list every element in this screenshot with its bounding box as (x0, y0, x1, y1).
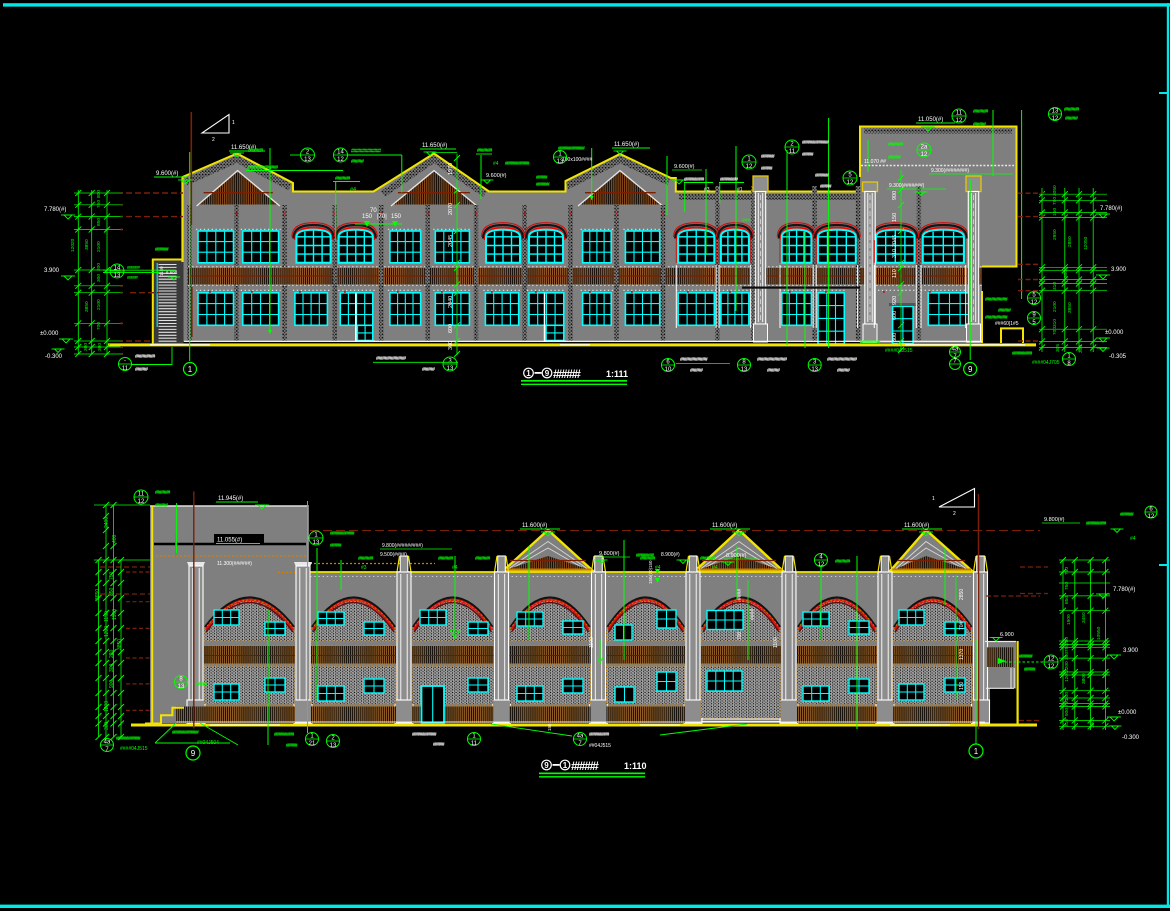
svg-text:##04J515: ##04J515 (589, 743, 611, 749)
svg-text:9.300(#######): 9.300(#######) (889, 183, 925, 189)
svg-text:12: 12 (1048, 657, 1055, 663)
svg-text:2100: 2100 (96, 299, 102, 310)
svg-text:####04J515: ####04J515 (120, 746, 148, 752)
svg-text:|70|: |70| (377, 214, 387, 220)
svg-text:200: 200 (1064, 692, 1070, 700)
svg-text:#####: ##### (196, 682, 208, 688)
svg-text:12: 12 (1148, 514, 1155, 520)
svg-text:#####: ##### (155, 503, 168, 509)
svg-text:1: 1 (232, 120, 235, 126)
svg-text:750: 750 (109, 571, 115, 580)
svg-text:3050: 3050 (1052, 185, 1058, 196)
svg-text:9: 9 (968, 365, 973, 374)
svg-text:9: 9 (545, 369, 550, 378)
svg-text:850: 850 (96, 218, 102, 226)
svg-text:#####: ##### (433, 742, 445, 748)
svg-text:12: 12 (921, 152, 928, 158)
svg-text:#####: ##### (553, 367, 581, 381)
svg-text:300: 300 (83, 343, 89, 351)
svg-text:1100: 1100 (589, 637, 595, 648)
svg-text:12: 12 (138, 499, 145, 505)
svg-text:11.600(#): 11.600(#) (522, 523, 547, 529)
svg-text:300: 300 (448, 341, 454, 350)
svg-text:###########: ########### (116, 736, 141, 742)
svg-text:12: 12 (746, 164, 753, 170)
svg-text:3850: 3850 (117, 639, 123, 650)
svg-text:#3: #3 (361, 565, 367, 571)
svg-text:13: 13 (741, 367, 748, 373)
svg-text:12: 12 (956, 118, 963, 124)
svg-text:8.900(#): 8.900(#) (661, 552, 680, 558)
svg-text:11: 11 (789, 149, 796, 155)
svg-text:######: ###### (475, 556, 490, 562)
svg-text:############: ############ (827, 357, 857, 363)
svg-text:2045: 2045 (448, 235, 454, 247)
svg-text:#####: ##### (571, 759, 599, 773)
svg-text:150: 150 (547, 723, 552, 731)
svg-text:300: 300 (1090, 720, 1096, 728)
svg-text:305: 305 (1055, 344, 1061, 352)
svg-text:3850: 3850 (84, 301, 90, 312)
svg-text:150: 150 (391, 214, 402, 220)
svg-text:#####: ##### (536, 175, 548, 181)
svg-text:######: ###### (761, 154, 775, 160)
svg-text:3.900: 3.900 (1123, 648, 1139, 654)
svg-text:110: 110 (892, 269, 898, 278)
svg-text:12: 12 (847, 180, 854, 186)
svg-text:12: 12 (818, 562, 825, 568)
svg-text:####: #### (750, 609, 756, 620)
svg-text:-: - (124, 359, 126, 365)
svg-text:#########: ######### (985, 297, 1008, 303)
svg-text:9.600(#): 9.600(#) (486, 173, 507, 179)
svg-text:3.900: 3.900 (1111, 267, 1127, 273)
svg-text:#####: ##### (973, 122, 986, 128)
svg-text:310: 310 (1064, 719, 1070, 727)
svg-text:###: ### (742, 218, 751, 224)
svg-text:900: 900 (892, 191, 898, 200)
svg-text:13: 13 (304, 157, 311, 163)
svg-text:13: 13 (330, 743, 337, 749)
svg-text:12050: 12050 (1083, 236, 1089, 250)
svg-text:######: ###### (815, 173, 829, 179)
svg-text:####: #### (737, 589, 743, 600)
svg-text:12020: 12020 (70, 238, 76, 252)
svg-text:11.600(#): 11.600(#) (712, 523, 737, 529)
svg-text:850: 850 (109, 587, 115, 596)
svg-text:##04J504: ##04J504 (197, 740, 219, 746)
svg-text:############: ############ (351, 149, 381, 155)
svg-text:700: 700 (737, 631, 743, 640)
svg-text:600: 600 (448, 324, 454, 333)
svg-text:13: 13 (313, 540, 320, 546)
svg-text:1150: 1150 (104, 611, 110, 622)
svg-text:400: 400 (112, 534, 118, 543)
svg-text:#####: ##### (1024, 667, 1036, 673)
svg-text:1200: 1200 (1064, 671, 1070, 682)
svg-text:#####: ##### (837, 368, 850, 374)
svg-text:750: 750 (1064, 699, 1070, 707)
svg-text:750: 750 (1064, 582, 1070, 590)
svg-text:300: 300 (97, 343, 103, 351)
svg-text:#####: ##### (767, 368, 780, 374)
svg-text:70#: 70# (959, 621, 965, 630)
svg-text:########: ######## (135, 354, 155, 360)
svg-text:4a: 4a (952, 347, 959, 353)
svg-text:800: 800 (96, 190, 102, 198)
svg-text:2045: 2045 (892, 235, 898, 247)
svg-text:2100: 2100 (96, 241, 102, 252)
svg-text:######: ###### (973, 109, 988, 115)
svg-text:900: 900 (109, 679, 115, 688)
svg-text:13: 13 (114, 273, 121, 279)
svg-text:###60|1#5: ###60|1#5 (995, 321, 1019, 327)
svg-text:(70): (70) (648, 567, 653, 576)
svg-text:310: 310 (1052, 319, 1058, 327)
svg-text:12: 12 (1052, 116, 1059, 122)
svg-text:150: 150 (959, 681, 965, 690)
svg-text:12: 12 (1048, 664, 1055, 670)
svg-text:9: 9 (191, 749, 196, 758)
svg-text:1150: 1150 (159, 266, 164, 276)
svg-text:750: 750 (1052, 197, 1058, 205)
svg-text:3.900: 3.900 (44, 268, 60, 274)
svg-text:1970: 1970 (448, 163, 454, 175)
svg-text:14: 14 (337, 150, 344, 156)
svg-text:######: ###### (640, 556, 655, 562)
svg-text:9.800(#########): 9.800(#########) (382, 543, 423, 549)
svg-text:14: 14 (114, 266, 121, 272)
svg-text:############: ############ (376, 356, 406, 362)
svg-text:######: ###### (477, 148, 492, 154)
svg-text:1: 1 (188, 365, 193, 374)
svg-text:1:110: 1:110 (624, 761, 647, 771)
svg-text:11.600(#): 11.600(#) (904, 523, 929, 529)
svg-text:-0.300: -0.300 (1122, 735, 1140, 741)
svg-text:200: 200 (96, 263, 102, 271)
svg-text:#####: ##### (127, 275, 138, 281)
svg-text:11.650(#): 11.650(#) (422, 143, 447, 149)
svg-text:850: 850 (1064, 596, 1070, 604)
svg-text:11: 11 (138, 492, 145, 498)
svg-text:-0.300: -0.300 (45, 354, 63, 360)
svg-text:2040: 2040 (448, 296, 454, 308)
svg-text:3850: 3850 (84, 239, 90, 250)
svg-text:300: 300 (109, 663, 115, 672)
svg-text:######: ###### (155, 247, 169, 253)
svg-text:3800: 3800 (1081, 673, 1087, 684)
svg-text:###########: ########### (505, 161, 530, 167)
svg-text:1900: 1900 (112, 609, 118, 620)
svg-text:300: 300 (892, 333, 898, 342)
svg-text:7.780(#): 7.780(#) (44, 207, 66, 213)
svg-text:#1: #1 (737, 187, 743, 193)
svg-text:9.500(####): 9.500(####) (380, 552, 407, 558)
svg-text:#####: ##### (820, 184, 832, 190)
svg-text:700: 700 (96, 322, 102, 330)
svg-text:1100: 1100 (773, 637, 779, 648)
svg-text:#4: #4 (655, 565, 661, 571)
svg-text:#####: ##### (351, 159, 364, 165)
svg-text:############: ############ (757, 357, 787, 363)
svg-text:#########: ######### (274, 732, 294, 738)
svg-text:±0.000: ±0.000 (40, 331, 59, 337)
svg-text:4a: 4a (577, 734, 584, 740)
svg-text:######: ###### (835, 559, 850, 565)
svg-text:1: 1 (526, 369, 531, 378)
svg-text:4a: 4a (104, 740, 111, 746)
svg-text:1200: 1200 (104, 701, 110, 712)
svg-text:############: ############ (172, 730, 199, 736)
svg-text:######: ###### (127, 265, 140, 271)
svg-text:######: ###### (1120, 512, 1134, 518)
svg-text:#########: ######### (589, 732, 609, 738)
svg-text:#####: ##### (1065, 116, 1078, 122)
svg-text:150: 150 (648, 576, 653, 584)
svg-text:#########: ######### (1012, 351, 1032, 357)
svg-text:#4: #4 (350, 187, 356, 193)
svg-text:3650: 3650 (95, 589, 101, 600)
svg-text:1200: 1200 (104, 626, 110, 637)
svg-text:9.300(########): 9.300(########) (931, 168, 969, 174)
svg-text:11.945(#): 11.945(#) (218, 496, 243, 502)
svg-text:######: ###### (155, 490, 170, 496)
svg-text:1: 1 (563, 761, 568, 770)
svg-text:13: 13 (447, 366, 454, 372)
svg-text:-0.305: -0.305 (1109, 354, 1127, 360)
svg-text:310: 310 (892, 249, 898, 258)
svg-text:7.780(#): 7.780(#) (1100, 206, 1122, 212)
svg-text:2400: 2400 (104, 517, 110, 528)
svg-text:2: 2 (212, 137, 215, 143)
svg-text:######: ###### (438, 556, 453, 562)
svg-text:300: 300 (1078, 345, 1084, 353)
svg-text:11.050(#): 11.050(#) (918, 117, 943, 123)
svg-text:8.900(#): 8.900(#) (726, 553, 747, 559)
svg-text:9.800(#): 9.800(#) (599, 551, 620, 557)
svg-text:9.600(#): 9.600(#) (674, 164, 695, 170)
svg-text:######: ###### (536, 182, 550, 188)
svg-text:920: 920 (892, 296, 898, 305)
svg-text:12: 12 (337, 157, 344, 163)
svg-text:2950: 2950 (1052, 229, 1058, 240)
svg-text:150: 150 (362, 214, 373, 220)
svg-text:1900: 1900 (1066, 614, 1072, 625)
svg-text:6.600: 6.600 (166, 270, 178, 275)
svg-text:####04J705: ####04J705 (1032, 360, 1060, 366)
svg-text:±0.000: ±0.000 (1105, 330, 1124, 336)
svg-text:600: 600 (892, 311, 898, 320)
svg-text:13: 13 (1052, 109, 1059, 115)
svg-text:#########: ######### (860, 340, 880, 346)
svg-text:3950: 3950 (1067, 302, 1073, 313)
svg-text:750: 750 (1064, 567, 1070, 575)
svg-text:11.300(######): 11.300(######) (217, 561, 252, 567)
svg-text:1370: 1370 (959, 649, 965, 660)
svg-text:#4: #4 (712, 565, 718, 571)
svg-text:310: 310 (1052, 282, 1058, 290)
svg-text:#####: ##### (998, 308, 1011, 314)
svg-text:750: 750 (1064, 644, 1070, 652)
svg-text:#####: ##### (135, 367, 148, 373)
svg-text:9.600(#): 9.600(#) (156, 171, 178, 177)
svg-text:2100: 2100 (1052, 301, 1058, 312)
svg-text:###########: ########### (330, 531, 355, 537)
svg-text:###########: ########### (680, 357, 708, 363)
svg-text:######: ###### (888, 142, 903, 148)
svg-text:######: ###### (1064, 107, 1079, 113)
svg-text:300: 300 (96, 274, 102, 282)
svg-text:2850: 2850 (959, 589, 965, 600)
svg-text:#3: #3 (704, 187, 710, 193)
svg-text:2070: 2070 (448, 203, 454, 215)
svg-text:############: ############ (802, 140, 829, 146)
svg-text:#####: ##### (802, 152, 814, 158)
svg-text:1: 1 (974, 747, 979, 756)
svg-text:######: ###### (358, 556, 373, 562)
svg-text:####04J515: ####04J515 (885, 348, 913, 354)
svg-text:9: 9 (544, 761, 549, 770)
svg-text:220: 220 (109, 649, 115, 658)
svg-text:#####: ##### (888, 155, 901, 161)
svg-text:2: 2 (953, 511, 956, 517)
svg-text:11.055(#): 11.055(#) (217, 538, 242, 544)
svg-text:9.800(#): 9.800(#) (1044, 517, 1065, 523)
svg-text:2a: 2a (921, 145, 928, 151)
svg-text:150: 150 (892, 213, 898, 222)
svg-text:13: 13 (557, 159, 564, 165)
svg-text:#####: ##### (690, 368, 703, 374)
svg-text:10: 10 (665, 367, 672, 373)
svg-text:±0.000: ±0.000 (1118, 710, 1137, 716)
svg-text:70: 70 (370, 208, 377, 214)
svg-text:###########: ########### (412, 732, 437, 738)
svg-text:13: 13 (811, 367, 818, 373)
svg-text:1:111: 1:111 (606, 369, 628, 379)
svg-text:#####: ##### (330, 543, 342, 549)
svg-text:######: ###### (1019, 654, 1033, 660)
svg-text:11: 11 (122, 366, 129, 372)
svg-text:750: 750 (96, 200, 102, 208)
svg-text:#####: ##### (761, 166, 773, 172)
svg-text:11: 11 (956, 111, 963, 117)
svg-text:1: 1 (932, 496, 935, 502)
svg-text:11: 11 (471, 741, 478, 747)
svg-text:150: 150 (1052, 208, 1058, 216)
svg-text:11.070 ##: 11.070 ## (864, 159, 886, 165)
svg-text:2850: 2850 (1067, 236, 1073, 247)
svg-text:3200: 3200 (1064, 661, 1070, 672)
svg-text:13: 13 (178, 684, 185, 690)
svg-text:#########: ######### (1086, 521, 1106, 527)
svg-text:10550: 10550 (1096, 626, 1102, 640)
svg-text:######: ###### (248, 148, 263, 154)
svg-text:700: 700 (1052, 327, 1058, 335)
svg-text:#####: ##### (422, 367, 435, 373)
svg-text:#4: #4 (493, 161, 499, 167)
svg-text:300: 300 (1063, 270, 1069, 278)
svg-text:#4: #4 (452, 565, 458, 571)
svg-text:900: 900 (1064, 708, 1070, 716)
svg-text:11.650(#): 11.650(#) (614, 142, 639, 148)
svg-text:#####: ##### (286, 743, 298, 749)
svg-text:#4: #4 (1130, 536, 1136, 542)
svg-text:200: 200 (1064, 637, 1070, 645)
svg-text:12: 12 (1031, 300, 1038, 306)
svg-text:300: 300 (104, 721, 110, 730)
svg-text:7.780(#): 7.780(#) (1113, 587, 1135, 593)
svg-text:21: 21 (309, 741, 316, 747)
svg-text:350: 350 (1064, 652, 1070, 660)
svg-text:3450: 3450 (1081, 612, 1087, 623)
svg-text:######: ###### (700, 556, 715, 562)
